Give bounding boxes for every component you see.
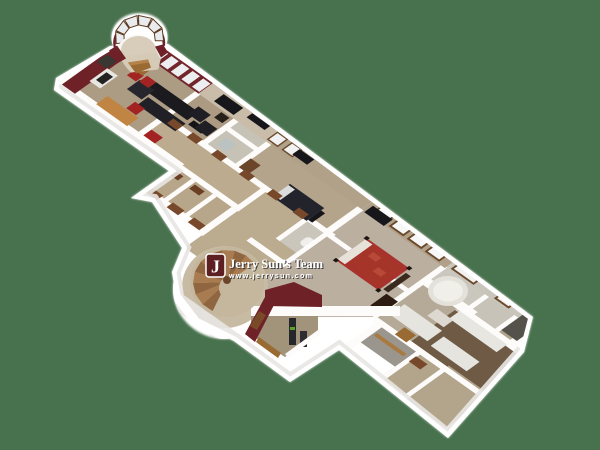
svg-text:J: J (211, 257, 220, 277)
svg-text:www.jerrysun.com: www.jerrysun.com (228, 273, 313, 280)
svg-text:Jerry Sun’s Team: Jerry Sun’s Team (229, 257, 324, 271)
